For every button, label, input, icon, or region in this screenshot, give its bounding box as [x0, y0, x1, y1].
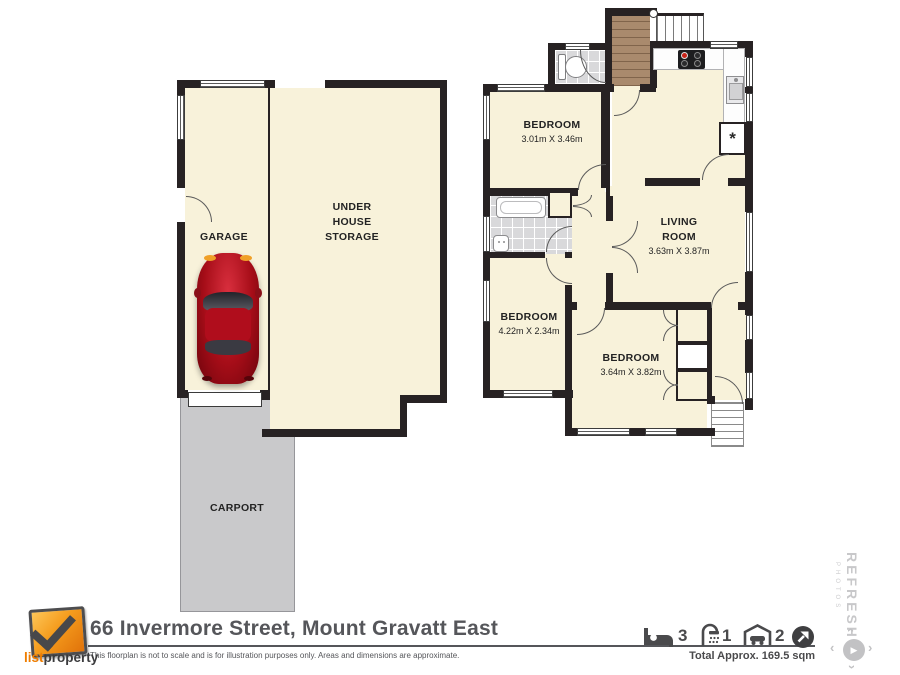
wall — [177, 390, 188, 398]
hot-water-symbol: * — [729, 129, 736, 149]
tap-dot — [498, 241, 500, 243]
wall — [177, 80, 200, 88]
wall — [645, 178, 700, 186]
front-stairs — [656, 13, 704, 44]
chevron-up-icon: ‹ — [846, 628, 856, 632]
window — [497, 84, 545, 92]
wall — [262, 429, 407, 437]
refresh-watermark-sub: PHOTOS — [834, 562, 840, 611]
car-taillight — [202, 376, 212, 381]
wall — [565, 302, 577, 310]
wall — [483, 390, 503, 398]
bedroom1-label: BEDROOM 3.01m X 3.46m — [521, 118, 582, 145]
bathtub-basin — [500, 201, 542, 214]
window — [577, 428, 630, 436]
car-headlight — [240, 255, 252, 261]
stove-burner — [694, 52, 701, 59]
window — [503, 390, 553, 398]
wall — [268, 88, 270, 390]
floorplan-page: * GARAGE UNDER HOUSE STORAGE CARPORT BED… — [0, 0, 900, 675]
garage-label: GARAGE — [200, 230, 248, 245]
wall — [745, 399, 753, 410]
window — [710, 41, 738, 49]
bedroom3-label: BEDROOM 3.64m X 3.82m — [600, 351, 661, 378]
wall — [745, 41, 753, 57]
wall — [545, 84, 614, 92]
north-arrow-icon — [791, 625, 815, 649]
wall — [483, 322, 490, 398]
window — [746, 372, 753, 399]
property-address: 66 Invermore Street, Mount Gravatt East — [90, 617, 498, 641]
wall — [590, 43, 612, 50]
wall — [548, 43, 565, 50]
car-headlight — [204, 255, 216, 261]
entry-deck — [612, 13, 650, 86]
wall — [177, 140, 185, 188]
kitchen-sink-basin — [729, 83, 743, 100]
wall — [483, 140, 490, 216]
window — [746, 212, 753, 272]
total-area-text: Total Approx. 169.5 sqm — [600, 650, 815, 662]
tap-dot — [503, 241, 505, 243]
car-roof — [205, 308, 251, 342]
chevron-down-icon: ‹ — [846, 665, 856, 669]
bed-icon — [643, 628, 674, 647]
linen-cupboard — [548, 191, 572, 218]
rear-stairs — [711, 402, 744, 447]
kitchen-tap — [734, 78, 738, 82]
bathtub — [496, 197, 546, 218]
living-room-label: LIVING ROOM 3.63m X 3.87m — [648, 215, 709, 257]
window — [177, 95, 185, 140]
wall — [440, 88, 447, 403]
bedroom3-shelf — [676, 343, 709, 370]
car-taillight — [244, 376, 254, 381]
shower-icon — [700, 623, 720, 646]
bathroom-count: 1 — [722, 626, 731, 646]
window — [200, 80, 265, 88]
window — [746, 93, 753, 122]
car-mirror — [255, 288, 262, 298]
wall — [177, 222, 185, 398]
carport-label: CARPORT — [210, 501, 264, 516]
bedroom3-closet-top — [676, 308, 709, 343]
wall — [745, 340, 753, 373]
refresh-compass-icon: ‹ › ‹ ‹ ▶ — [830, 626, 878, 674]
wall — [177, 88, 185, 95]
window — [565, 43, 590, 50]
window — [483, 280, 490, 322]
wall — [745, 122, 753, 212]
wall — [606, 188, 610, 196]
car-garage-icon — [743, 624, 772, 646]
wall — [265, 80, 275, 88]
wall — [630, 428, 645, 436]
car-count: 2 — [775, 626, 784, 646]
stove-cooktop — [678, 50, 705, 69]
kitchen-sink — [726, 76, 744, 104]
wall — [325, 80, 447, 88]
compass-center: ▶ — [843, 639, 865, 661]
wall — [677, 428, 715, 436]
bathroom-sink — [493, 235, 509, 252]
stove-burner — [681, 60, 688, 67]
bed-count: 3 — [678, 626, 687, 646]
car-rear-window — [205, 340, 251, 355]
stair-newel-post — [649, 9, 658, 18]
stove-burner — [681, 52, 688, 59]
car-top-view — [196, 250, 260, 388]
window — [746, 315, 753, 340]
listproperty-wordmark: listproperty — [24, 650, 98, 665]
wall — [728, 178, 745, 186]
wall — [738, 302, 753, 310]
window — [483, 95, 490, 140]
wall — [483, 252, 545, 258]
wall — [553, 390, 573, 398]
wall — [400, 395, 447, 403]
wall — [605, 8, 612, 92]
window — [483, 216, 490, 252]
wall — [606, 196, 613, 221]
chevron-right-icon: › — [868, 643, 872, 653]
stove-burner — [694, 60, 701, 67]
room-floor — [270, 395, 400, 429]
hot-water-unit: * — [719, 122, 746, 155]
bedroom2-label: BEDROOM 4.22m X 2.34m — [498, 310, 559, 337]
wall — [483, 84, 490, 95]
wall — [565, 428, 577, 436]
bedroom3-closet-bottom — [676, 370, 709, 401]
storage-label: UNDER HOUSE STORAGE — [325, 200, 379, 245]
window — [746, 57, 753, 87]
window — [645, 428, 677, 436]
wall — [640, 84, 656, 92]
garage-door — [188, 392, 262, 407]
chevron-left-icon: ‹ — [830, 643, 834, 653]
disclaimer-text: This floorplan is not to scale and is fo… — [90, 651, 459, 660]
car-mirror — [194, 288, 201, 298]
